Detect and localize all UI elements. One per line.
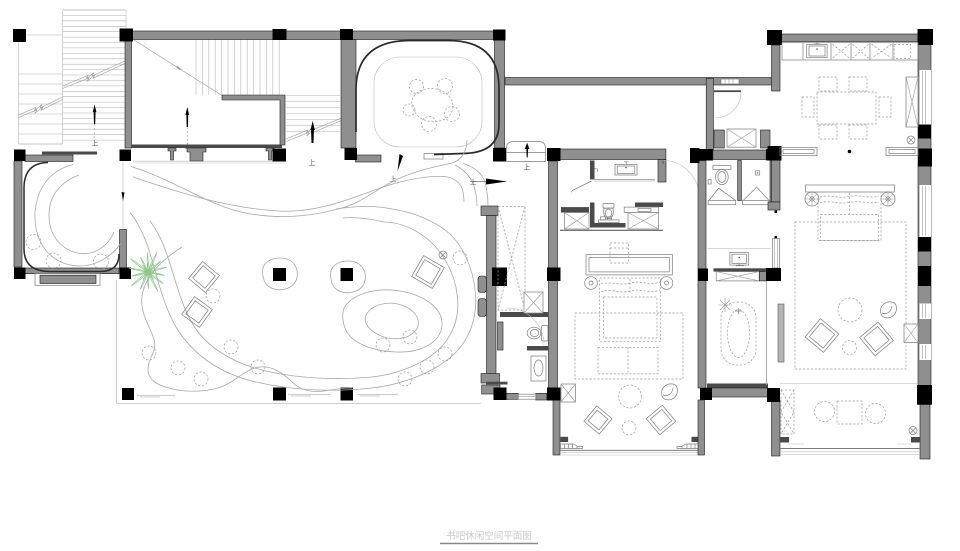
svg-text:上: 上 (390, 174, 397, 183)
svg-text:书吧休闲空间平面图: 书吧休闲空间平面图 (446, 530, 532, 542)
svg-text:上: 上 (92, 139, 99, 148)
svg-text:上: 上 (309, 158, 316, 167)
svg-text:上: 上 (524, 163, 531, 172)
svg-text:上: 上 (470, 177, 477, 186)
